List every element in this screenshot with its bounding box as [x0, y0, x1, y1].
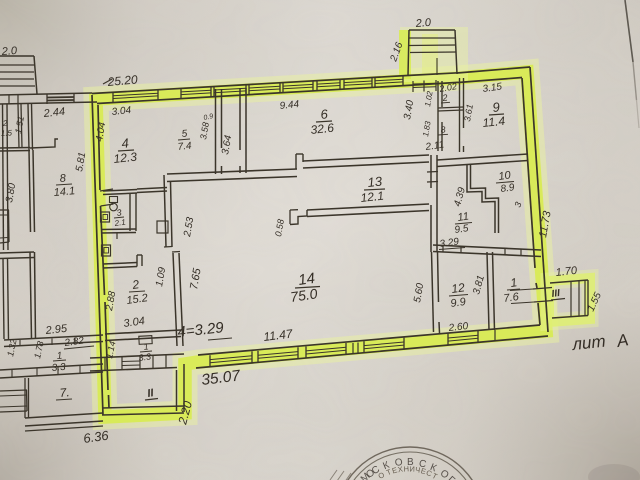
svg-text:3.04: 3.04: [111, 105, 132, 118]
svg-text:7.4: 7.4: [177, 141, 192, 153]
svg-text:7.: 7.: [59, 385, 70, 400]
svg-text:лит: лит: [570, 332, 606, 354]
svg-text:1.5: 1.5: [1, 128, 13, 138]
svg-text:2.95: 2.95: [44, 323, 68, 337]
svg-text:25.20: 25.20: [106, 72, 138, 89]
svg-text:2.44: 2.44: [42, 106, 66, 120]
svg-text:9.9: 9.9: [450, 296, 467, 310]
svg-text:11.4: 11.4: [482, 114, 506, 130]
svg-text:2.60: 2.60: [447, 321, 469, 334]
svg-text:2: 2: [2, 119, 8, 128]
svg-text:13: 13: [367, 173, 384, 190]
svg-text:III: III: [551, 288, 561, 300]
svg-text:9.5: 9.5: [454, 223, 470, 236]
svg-text:32.6: 32.6: [310, 121, 335, 137]
svg-text:3.3: 3.3: [51, 362, 66, 374]
svg-text:12.3: 12.3: [113, 150, 138, 166]
svg-text:7.6: 7.6: [503, 291, 521, 305]
svg-text:3.3: 3.3: [138, 351, 152, 363]
svg-text:8.9: 8.9: [500, 182, 516, 195]
svg-text:11: 11: [457, 210, 470, 223]
svg-text:1.70: 1.70: [555, 265, 578, 279]
svg-text:12.1: 12.1: [360, 189, 385, 205]
svg-text:2.0: 2.0: [0, 45, 18, 58]
svg-text:2.1: 2.1: [113, 218, 126, 229]
svg-text:2.0: 2.0: [414, 17, 432, 30]
svg-text:9.44: 9.44: [279, 99, 300, 112]
svg-text:14.1: 14.1: [53, 185, 75, 199]
svg-text:12: 12: [450, 280, 465, 296]
